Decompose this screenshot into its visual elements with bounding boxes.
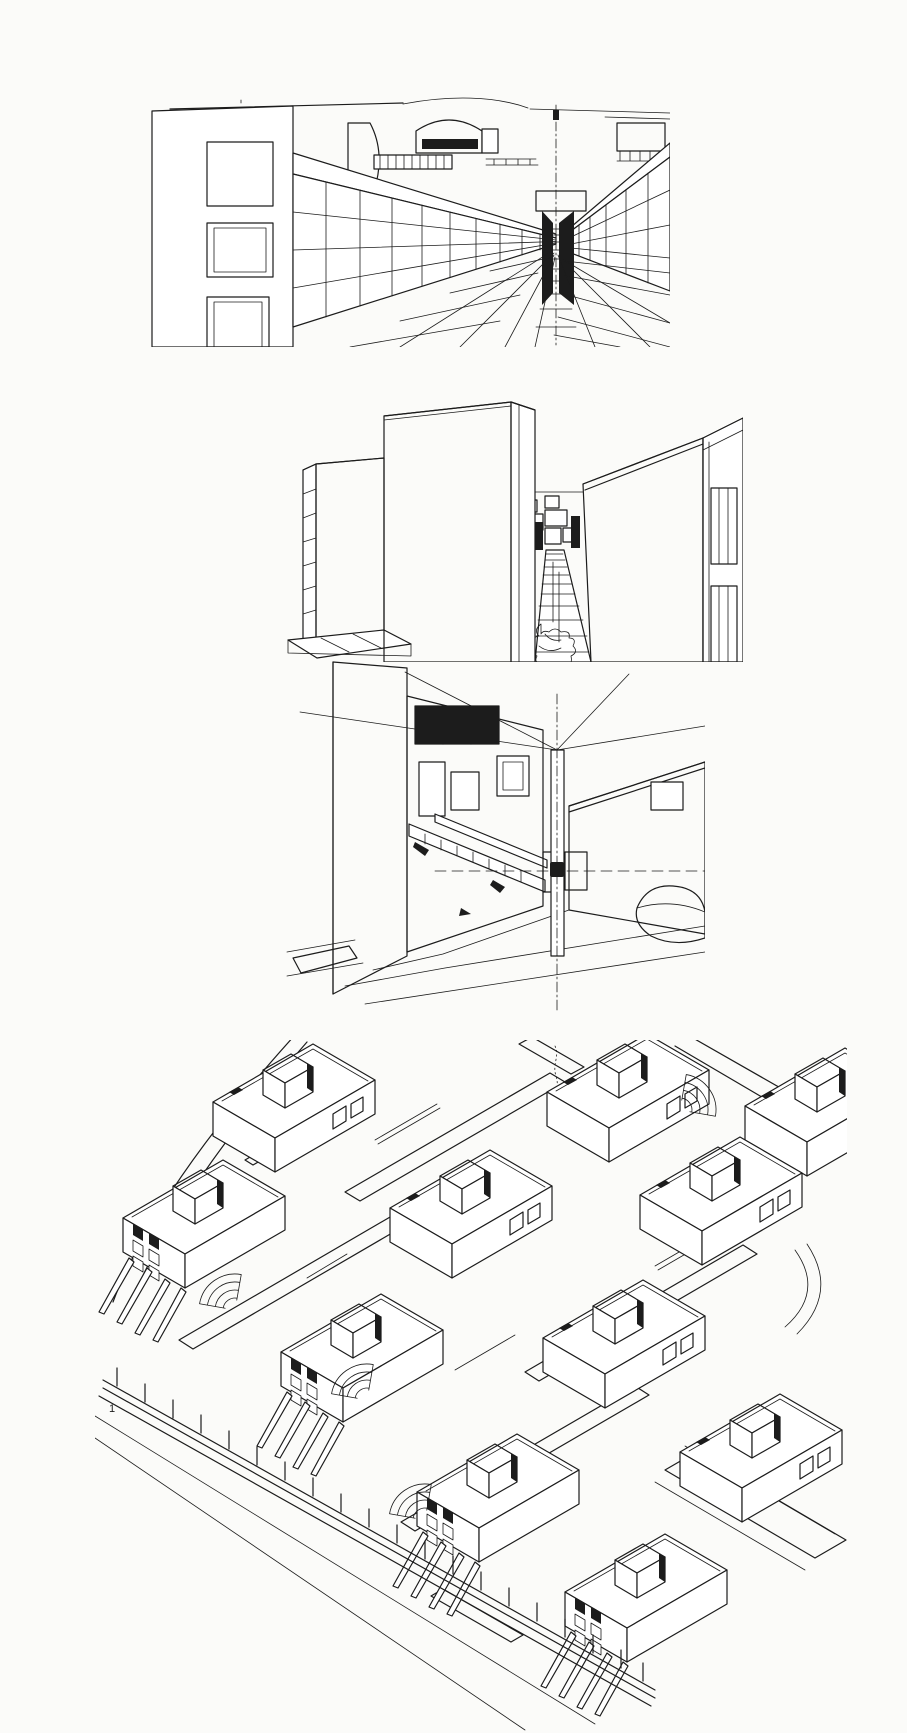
alley-perspective-art [283,372,743,662]
fence-mark-label: 1 [109,1403,115,1415]
settlement-axonometric-art: 1 [95,1040,847,1733]
drawing-courtyard-corner [285,656,705,1018]
drawing-settlement-axonometric: 1 [95,1040,847,1733]
courtyard-corner-art [285,656,705,1018]
drawing-street-perspective [150,95,670,347]
drawing-alley-perspective [283,372,743,662]
scanned-drawings-page: 1 [0,0,907,1733]
street-perspective-art [150,95,670,347]
